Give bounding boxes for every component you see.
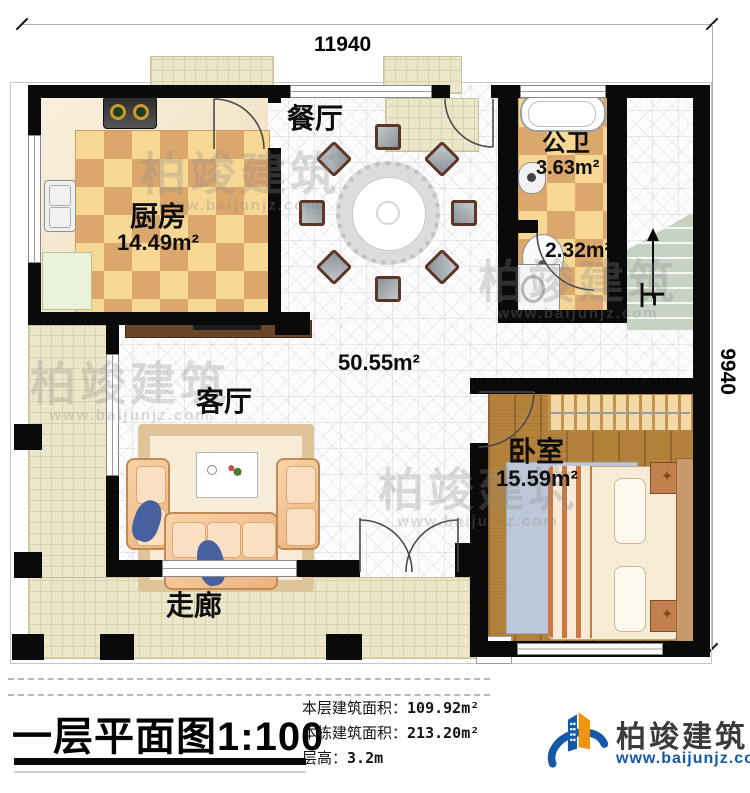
company-website: www.baijunjz.com — [616, 750, 750, 768]
dining-label: 餐厅 — [287, 105, 343, 133]
floor-plan-canvas: 11940 9940 ✦ ✦ — [0, 0, 750, 793]
area-info: 本层建筑面积：109.92m² 本栋建筑面积：213.20m² 层高：3.2m — [302, 696, 479, 771]
title-underline — [14, 758, 306, 765]
laundry-area: 2.32m² — [545, 240, 612, 261]
eave-line — [8, 678, 490, 680]
entry-alcove-door-arc — [445, 99, 493, 147]
plan-title-text: 一层平面图 — [12, 715, 217, 759]
entry-door-right-arc — [406, 520, 458, 572]
stairs-up-label: 上 — [638, 282, 664, 308]
door-arcs — [0, 0, 750, 793]
bath-label: 公卫 — [542, 132, 590, 156]
kitchen-label: 厨房 — [130, 203, 186, 231]
bedroom-label: 卧室 — [508, 438, 564, 466]
company-logo-icon — [536, 702, 612, 780]
kitchen-area: 14.49m² — [117, 232, 199, 254]
entry-door-left-arc — [360, 520, 412, 572]
plan-title: 一层平面图1:100 — [12, 704, 324, 762]
living-label: 客厅 — [196, 388, 252, 416]
bedroom-area: 15.59m² — [496, 468, 578, 490]
info-row: 层高：3.2m — [302, 746, 479, 771]
kitchen-door-arc — [214, 99, 264, 149]
info-row: 本栋建筑面积：213.20m² — [302, 721, 479, 746]
info-row: 本层建筑面积：109.92m² — [302, 696, 479, 721]
hall-area: 50.55m² — [338, 352, 420, 374]
title-underline-thin — [14, 771, 306, 773]
corridor-label: 走廊 — [166, 592, 222, 620]
bath-area: 3.63m² — [536, 158, 599, 178]
